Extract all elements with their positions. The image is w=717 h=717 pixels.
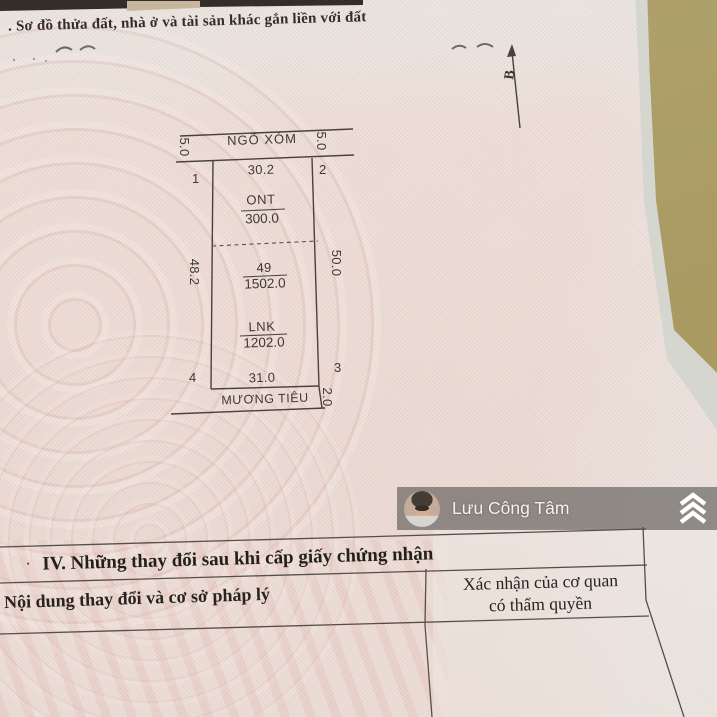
road-width-left: 5.0: [176, 134, 192, 160]
plot-right-edge: [312, 158, 319, 387]
watermark-overlay-bar: Lưu Công Tâm: [397, 487, 717, 530]
avatar: [404, 491, 440, 527]
right-edge-dimension: 50.0: [328, 241, 344, 285]
plot-bottom-line: [211, 386, 319, 389]
road-width-right: 5.0: [313, 128, 329, 154]
north-arrow-line: [512, 52, 520, 128]
ditch-width-dimension: 2.0: [319, 380, 335, 414]
handwritten-mark: [56, 47, 72, 52]
handwritten-mark: [80, 46, 95, 50]
table-column-divider: [425, 569, 432, 717]
ink-speck: [45, 60, 47, 62]
bottom-edge-dimension: 31.0: [232, 369, 292, 386]
top-edge-dimension: 30.2: [231, 161, 291, 178]
left-edge-dimension: 48.2: [186, 250, 202, 294]
road-label: NGÕ XÓM: [212, 130, 312, 148]
table-top-border: [0, 529, 646, 547]
corner-1: 1: [192, 171, 199, 186]
ink-speck: [33, 58, 35, 60]
zone2-parcel-number: 49: [234, 259, 294, 276]
header-bullet: ·: [26, 556, 31, 571]
land-certificate-photo: . Sơ đồ thửa đất, nhà ở và tài sản khác …: [0, 0, 717, 717]
north-arrow-head: [507, 44, 516, 57]
plot-left-edge: [211, 160, 213, 389]
zone3-area: 1202.0: [234, 334, 294, 351]
corner-4: 4: [189, 370, 196, 385]
ditch-bottom-line: [171, 408, 325, 414]
ink-speck: [13, 59, 15, 61]
handwritten-mark: [477, 44, 493, 47]
zone-divider-dashed-line: [212, 241, 318, 246]
watermark-user-name: Lưu Công Tâm: [452, 498, 569, 519]
zone1-area: 300.0: [232, 210, 292, 227]
table-row2-divider: [0, 616, 649, 634]
north-label: B: [502, 69, 519, 80]
corner-3: 3: [334, 360, 341, 375]
zone3-land-type: LNK: [232, 318, 292, 335]
table-right-border: [643, 527, 684, 717]
zone2-area: 1502.0: [235, 275, 295, 292]
chevron-stack-logo-icon: [677, 491, 709, 527]
corner-2: 2: [319, 162, 326, 177]
handwritten-mark: [452, 46, 466, 49]
zone1-land-type: ONT: [231, 191, 291, 208]
